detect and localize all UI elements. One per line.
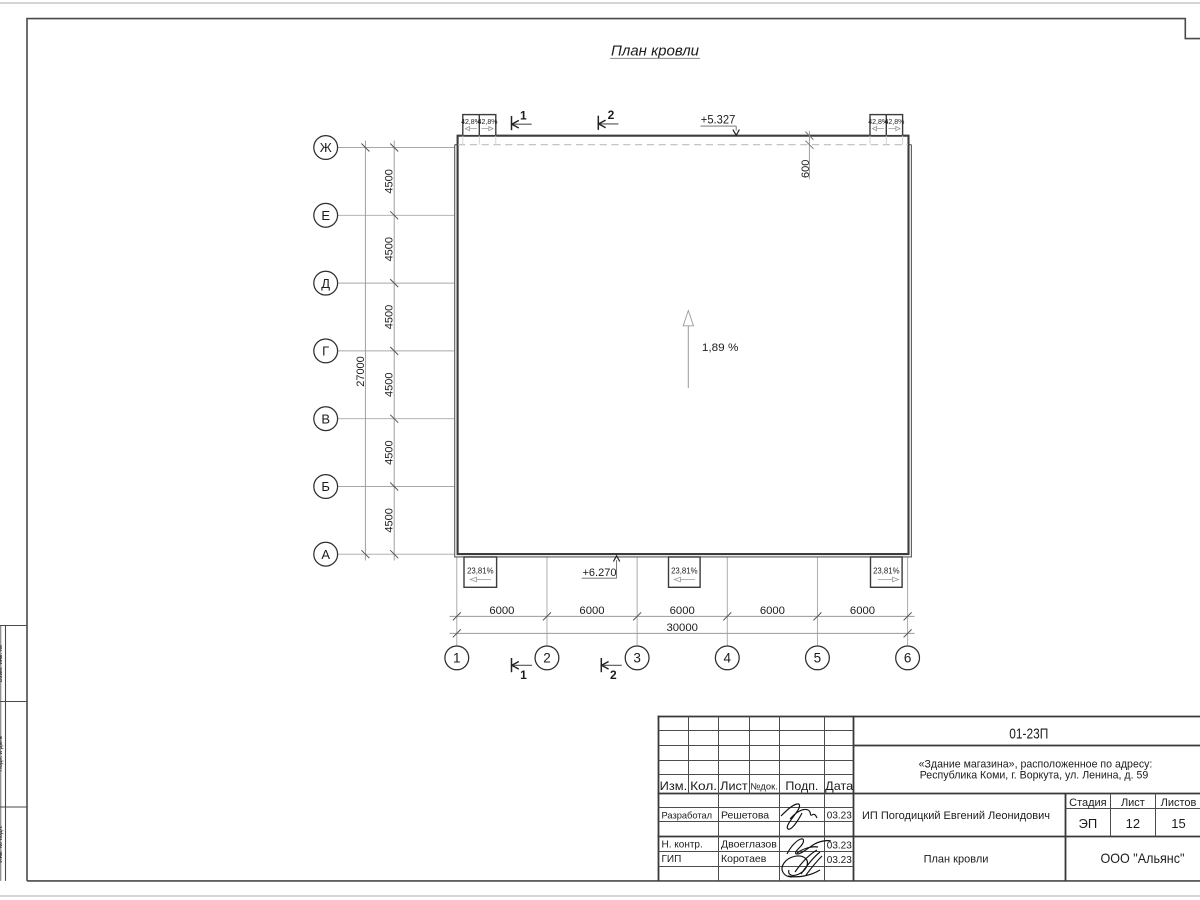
svg-text:Решетова: Решетова — [721, 809, 769, 821]
svg-text:6000: 6000 — [579, 605, 604, 617]
svg-text:30000: 30000 — [666, 622, 697, 634]
svg-text:Кол.: Кол. — [690, 779, 717, 793]
svg-text:4500: 4500 — [384, 169, 396, 193]
svg-text:Д: Д — [321, 276, 330, 291]
svg-text:Н. контр.: Н. контр. — [662, 840, 703, 851]
svg-text:4500: 4500 — [384, 440, 396, 464]
svg-text:Лист: Лист — [1121, 797, 1145, 809]
svg-text:В: В — [321, 411, 330, 426]
svg-text:1,89 %: 1,89 % — [702, 342, 739, 354]
svg-text:1: 1 — [453, 651, 461, 666]
svg-text:2: 2 — [610, 668, 617, 682]
svg-text:1: 1 — [520, 108, 527, 122]
svg-text:Республика Коми, г. Воркута, у: Республика Коми, г. Воркута, ул. Ленина,… — [920, 769, 1149, 781]
svg-text:ГИП: ГИП — [662, 854, 682, 865]
svg-text:А: А — [321, 547, 330, 562]
svg-text:5: 5 — [814, 651, 822, 666]
svg-text:2: 2 — [608, 108, 615, 122]
svg-text:Листов: Листов — [1161, 797, 1197, 809]
svg-text:600: 600 — [800, 160, 812, 178]
svg-text:4500: 4500 — [384, 305, 396, 329]
svg-text:Взам. инв. №: Взам. инв. № — [0, 645, 4, 682]
svg-text:12: 12 — [1126, 816, 1140, 831]
svg-text:27000: 27000 — [355, 356, 367, 387]
svg-text:План кровли: План кровли — [611, 43, 700, 60]
svg-text:6: 6 — [904, 651, 912, 666]
svg-text:4500: 4500 — [384, 373, 396, 397]
svg-text:6000: 6000 — [670, 605, 695, 617]
svg-text:03.23: 03.23 — [827, 840, 852, 851]
svg-text:2: 2 — [543, 651, 551, 666]
svg-text:Стадия: Стадия — [1069, 797, 1107, 809]
svg-text:+6.270: +6.270 — [583, 567, 617, 579]
svg-text:01-23П: 01-23П — [1009, 726, 1048, 743]
svg-text:3: 3 — [633, 651, 641, 666]
svg-text:4500: 4500 — [384, 237, 396, 261]
svg-text:№док.: №док. — [750, 782, 778, 792]
svg-text:Коротаев: Коротаев — [721, 853, 767, 865]
svg-text:6000: 6000 — [850, 605, 875, 617]
svg-text:4500: 4500 — [384, 508, 396, 532]
svg-text:6000: 6000 — [489, 605, 514, 617]
svg-text:23,81%: 23,81% — [671, 566, 698, 575]
svg-text:Е: Е — [321, 208, 330, 223]
svg-text:ИП Погодицкий Евгений Леонидов: ИП Погодицкий Евгений Леонидович — [862, 810, 1050, 822]
svg-text:Инв. № подл.: Инв. № подл. — [0, 825, 4, 863]
svg-text:Двоеглазов: Двоеглазов — [721, 839, 777, 851]
svg-text:План кровли: План кровли — [924, 854, 989, 866]
svg-text:15: 15 — [1171, 816, 1185, 831]
svg-text:4: 4 — [724, 651, 732, 666]
svg-text:+5.327: +5.327 — [701, 113, 736, 127]
svg-text:ЭП: ЭП — [1079, 816, 1098, 831]
svg-text:Подп.: Подп. — [785, 779, 818, 793]
svg-text:Б: Б — [321, 479, 330, 494]
svg-text:Ж: Ж — [320, 140, 332, 155]
svg-text:Подп. и дата: Подп. и дата — [0, 736, 4, 772]
svg-text:23,81%: 23,81% — [873, 566, 900, 575]
svg-text:ООО "Альянс": ООО "Альянс" — [1101, 850, 1185, 866]
svg-text:Г: Г — [322, 344, 329, 359]
svg-text:42,8%: 42,8% — [478, 119, 498, 126]
svg-text:03.23: 03.23 — [827, 811, 852, 822]
svg-text:6000: 6000 — [760, 605, 785, 617]
svg-text:Дата: Дата — [825, 779, 853, 793]
svg-text:Разработал: Разработал — [662, 810, 713, 820]
svg-text:03.23: 03.23 — [827, 855, 852, 866]
svg-text:1: 1 — [520, 668, 527, 682]
svg-text:Изм.: Изм. — [660, 779, 688, 793]
svg-text:42,8%: 42,8% — [884, 119, 904, 126]
svg-text:Лист: Лист — [720, 779, 748, 793]
svg-text:23,81%: 23,81% — [467, 566, 494, 575]
